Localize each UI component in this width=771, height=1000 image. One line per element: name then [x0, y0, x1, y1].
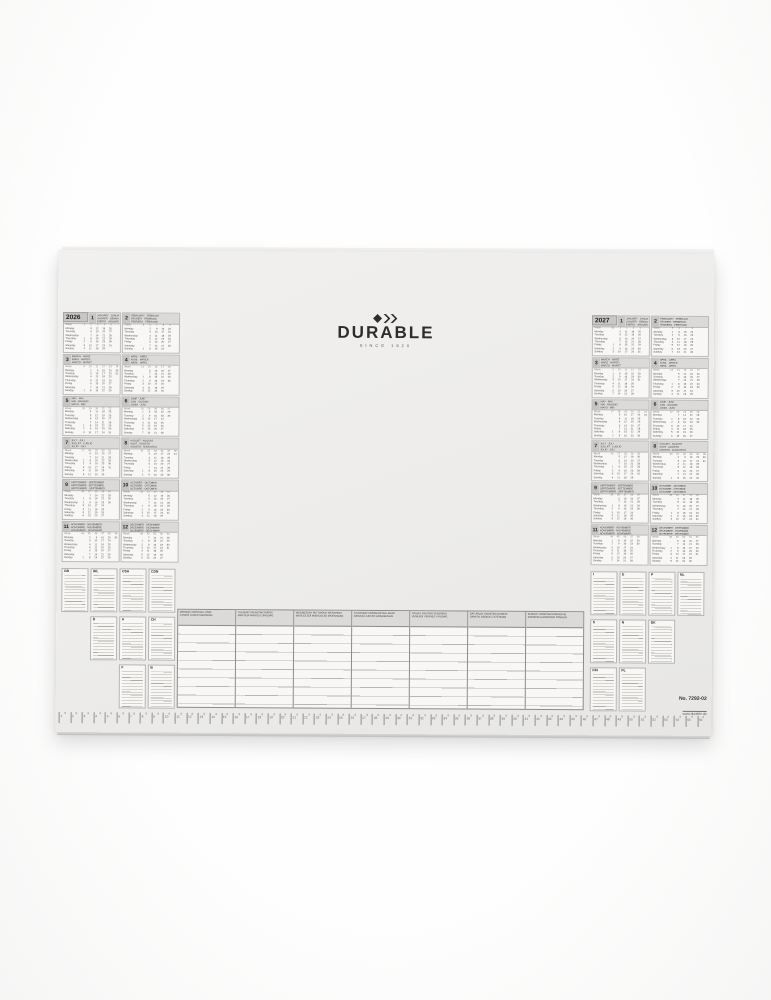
legend-country-code: IRL: [92, 569, 117, 574]
legend-country-code: A: [120, 617, 145, 622]
date-cell: [640, 474, 647, 477]
weekday-label: Sunday: [594, 393, 607, 396]
date-cell: 31: [640, 415, 647, 418]
date-cell: [170, 433, 177, 436]
ruler-cm-mark: 1: [59, 712, 71, 723]
planner-day-column: THURSDAY DONNERSTAG JEUDIGIOVEDÌ JUEVES …: [351, 611, 410, 708]
date-cell: [640, 464, 647, 467]
ruler-cm-mark: 9: [151, 713, 163, 724]
date-cell: [641, 335, 648, 338]
month-date-grid: Week3536373839Monday6132027Tuesday714212…: [592, 494, 648, 523]
month-number: 2: [652, 317, 659, 327]
date-cell: [699, 519, 706, 522]
holiday-legend-box: DK: [648, 620, 675, 664]
date-cell: [699, 502, 706, 505]
holiday-legend-box: CH: [148, 617, 175, 661]
date-cell: [640, 390, 647, 393]
month-name-line: SEPTIEMBRE · SEPTEMBER: [71, 487, 105, 490]
date-cell: [111, 453, 118, 456]
month-date-grid: Week2728293031Monday6132027Tuesday714212…: [63, 449, 119, 478]
date-cell: [640, 544, 647, 547]
week-number: [699, 495, 706, 498]
ruler-cm-mark: 14: [210, 713, 222, 724]
date-cell: [170, 509, 177, 512]
ruler-cm-mark: 10: [163, 713, 175, 724]
month-number: 12: [651, 526, 658, 536]
planner-writing-lines: [526, 628, 583, 709]
planner-day-header: FRIDAY FREITAG VENDREDIVENERDÌ VIERNES V…: [410, 611, 467, 627]
week-number: [641, 328, 648, 331]
month-date-grid: Week2627282930Monday5121926Tuesday613202…: [592, 452, 648, 481]
date-cell: [640, 498, 647, 501]
month-name-line: AGOSTO · AUGUSTUS: [659, 449, 686, 452]
weekday-label: Sunday: [653, 435, 666, 438]
date-cell: [111, 387, 118, 390]
holiday-legend-box: S: [590, 619, 617, 663]
date-cell: [170, 419, 177, 422]
weekday-label: Sunday: [65, 390, 78, 393]
ruler-cm-mark: 35: [453, 714, 465, 725]
date-cell: [699, 436, 706, 439]
month-names: MARCH · MÄRZMARS · MARZOMARZO · MAART: [71, 355, 93, 365]
date-cell: [170, 461, 177, 464]
date-cell: [700, 352, 707, 355]
legend-holiday-lines: [680, 579, 701, 615]
month-names: JULY · JULIJUILLET · LUGLIOJULIO · JULI: [70, 438, 93, 448]
month-header: 9SEPTEMBER · SEPTEMBERSEPTEMBRE · SETTEM…: [592, 483, 648, 494]
ruler-cm-mark: 47: [593, 715, 605, 726]
legend-country-code: DK: [649, 621, 674, 626]
date-cell: [700, 377, 707, 380]
date-cell: [640, 387, 647, 390]
month-name-line: DICIEMBRE · DECEMBER: [130, 529, 160, 532]
weekday-label: Sunday: [594, 435, 607, 438]
month-block: 10OCTOBER · OKTOBEROCTOBRE · OTTOBREOCTU…: [650, 483, 708, 524]
date-cell: [111, 474, 118, 477]
month-number: 8: [122, 439, 129, 449]
month-name-line: NOVIEMBRE · NOVEMBER: [71, 529, 103, 532]
month-names: DECEMBER · DEZEMBERDÉCEMBRE · DICEMBREDI…: [658, 526, 690, 536]
month-name-line: JUNIO · JUNI: [660, 407, 678, 410]
item-number: No. 7292-02: [616, 695, 707, 702]
legend-holiday-lines: [151, 671, 172, 707]
month-names: SEPTEMBER · SEPTEMBERSEPTEMBRE · SETTEMB…: [599, 483, 635, 493]
date-cell: [170, 474, 177, 477]
month-date-grid: Week313233343536Monday310172431Tuesday41…: [122, 449, 178, 478]
month-date-grid: Week1819202122Monday4111825Tuesday512192…: [63, 407, 119, 436]
month-number: 1: [618, 316, 625, 326]
date-cell: [699, 478, 706, 481]
holiday-legend-box: N: [619, 619, 646, 663]
month-header: 12DECEMBER · DEZEMBERDÉCEMBRE · DICEMBRE…: [122, 522, 178, 533]
date-cell: [170, 387, 177, 390]
week-number: [640, 453, 647, 456]
date-cell: [171, 339, 178, 342]
date-cell: [171, 377, 178, 380]
legend-country-code: GB: [63, 569, 88, 574]
month-name-line: SEPTIEMBRE · SEPTEMBER: [600, 490, 634, 493]
month-names: OCTOBER · OKTOBEROCTOBRE · OTTOBREOCTUBR…: [658, 484, 687, 494]
month-names: OCTOBER · OKTOBEROCTOBRE · OTTOBREOCTUBR…: [129, 481, 158, 491]
planner-day-header: THURSDAY DONNERSTAG JEUDIGIOVEDÌ JUEVES …: [352, 611, 409, 627]
month-block: 12DECEMBER · DEZEMBERDÉCEMBRE · DICEMBRE…: [121, 521, 179, 562]
date-cell: [170, 380, 177, 383]
ruler-cm-mark: 17: [244, 713, 256, 724]
month-header: 10OCTOBER · OKTOBEROCTOBRE · OTTOBREOCTU…: [651, 484, 707, 495]
month-names: AUGUST · AUGUSTAOÛT · AGOSTOAGOSTO · AUG…: [658, 442, 687, 452]
date-cell: [110, 547, 117, 550]
month-names: DECEMBER · DEZEMBERDÉCEMBRE · DICEMBREDI…: [129, 522, 161, 532]
month-header: 4APRIL · APRILAVRIL · APRILEABRIL · APRI…: [652, 358, 708, 369]
date-cell: [169, 544, 176, 547]
month-date-grid: Week4849505152Monday6132027Tuesday714212…: [651, 536, 707, 565]
month-name-line: FEBRERO · FEBRUARI: [131, 320, 159, 323]
date-cell: [641, 342, 648, 345]
month-names: APRIL · APRILAVRIL · APRILEABRIL · APRIL: [659, 358, 679, 368]
week-number: [640, 537, 647, 540]
ruler-cm-mark: 55: [685, 716, 697, 727]
weekday-label: Sunday: [65, 432, 78, 435]
month-block: 5MAY · MAIMAI · MAGGIOMAYO · MEIWeek1718…: [591, 399, 649, 440]
month-date-grid: Week4950515253Monday7142128Tuesday181522…: [122, 533, 178, 562]
legend-country-code: P: [649, 573, 674, 578]
ruler-cm-mark: 54: [674, 716, 686, 727]
month-header: 2FEBRUARY · FEBRUARFÉVRIER · FEBBRAIOFEB…: [123, 313, 179, 324]
month-number: 5: [64, 397, 71, 407]
month-date-grid: Week91011121314Monday29162330Tuesday3101…: [64, 365, 120, 394]
month-names: AUGUST · AUGUSTAOÛT · AGOSTOAGOSTO · AUG…: [129, 439, 158, 449]
weekday-label: Sunday: [123, 516, 136, 519]
ruler-cm-mark: 44: [558, 715, 570, 726]
month-number: 6: [123, 397, 130, 407]
week-number: [171, 325, 178, 328]
planner-day-names-line2: LUNEDÌ LUNES MAANDAG: [180, 614, 234, 618]
year-calendar-right: 1JANUARY · JANUARJANVIER · GENNAIOENERO …: [591, 315, 710, 565]
holiday-legend-box: NL: [677, 572, 704, 616]
month-header: 7JULY · JULIJUILLET · LUGLIOJULIO · JULI: [592, 442, 648, 453]
holiday-legend-box: E: [619, 571, 646, 615]
month-name-line: JUNIO · JUNI: [131, 404, 149, 407]
month-date-grid: Week4445464748Monday18152229Tuesday29162…: [592, 536, 648, 565]
date-cell: [170, 537, 177, 540]
month-header: 3MARCH · MÄRZMARS · MARZOMARZO · MAART: [64, 355, 120, 366]
planner-writing-lines: [178, 626, 235, 707]
planner-day-names-line2: DOMENICA DOMINGO ZONDAG: [528, 616, 582, 620]
week-number: [699, 537, 706, 540]
planner-day-header: WEDNESDAY MITTWOCH MERCREDIMERCOLEDÌ MIÉ…: [294, 610, 351, 626]
date-cell: [111, 495, 118, 498]
ruler-cm-mark: 25: [337, 714, 349, 725]
date-cell: [112, 349, 119, 352]
date-cell: [171, 328, 178, 331]
date-cell: [171, 346, 178, 349]
month-block: 7JULY · JULIJUILLET · LUGLIOJULIO · JULI…: [591, 441, 649, 482]
date-cell: [112, 328, 119, 331]
month-number: 11: [63, 522, 70, 532]
date-cell: [110, 554, 117, 557]
legend-holiday-lines: [151, 623, 172, 659]
legend-country-code: PL: [620, 668, 645, 673]
product-photo-scene: DURABLE SINCE 1920 2026 2027 1JANUARY · …: [0, 0, 771, 1000]
date-cell: [640, 432, 647, 435]
month-date-grid: Week444546474849Monday29162330Tuesday310…: [63, 533, 119, 562]
week-number: [640, 495, 647, 498]
week-number: [700, 370, 707, 373]
weekday-label: Sunday: [124, 432, 137, 435]
date-cell: [640, 425, 647, 428]
month-names: FEBRUARY · FEBRUARFÉVRIER · FEBBRAIOFEBR…: [130, 313, 160, 323]
date-cell: [170, 467, 177, 470]
planner-day-column: WEDNESDAY MITTWOCH MERCREDIMERCOLEDÌ MIÉ…: [293, 610, 352, 707]
cm-ruler: 1234567891011121314151617181920212223242…: [59, 712, 709, 727]
legend-holiday-lines: [593, 626, 614, 662]
month-header: 9SEPTEMBER · SEPTEMBERSEPTEMBRE · SETTEM…: [63, 480, 119, 491]
date-cell: [641, 373, 648, 376]
date-cell: [640, 467, 647, 470]
date-cell: [640, 422, 647, 425]
month-block: 5MAY · MAIMAI · MAGGIOMAYO · MEIWeek1819…: [62, 396, 120, 437]
date-cell: [171, 335, 178, 338]
weekday-label: Sunday: [653, 477, 666, 480]
month-name-line: JULIO · JULI: [600, 448, 621, 451]
ruler-cm-mark: 33: [430, 714, 442, 725]
date-cell: [700, 349, 707, 352]
month-date-grid: Week1314151617Monday5121926Tuesday613202…: [652, 369, 708, 398]
month-block: 3MARCH · MÄRZMARS · MARZOMARZO · MAARTWe…: [592, 357, 650, 398]
date-cell: [112, 345, 119, 348]
date-cell: [640, 457, 647, 460]
date-cell: [111, 457, 118, 460]
month-name-line: MARZO · MAART: [72, 362, 92, 365]
month-date-grid: Week2324252627Monday18152229Tuesday29162…: [122, 407, 178, 436]
week-number: [170, 409, 177, 412]
month-block: 8AUGUST · AUGUSTAOÛT · AGOSTOAGOSTO · AU…: [121, 438, 179, 479]
legend-holiday-lines: [93, 575, 114, 611]
date-cell: [700, 335, 707, 338]
ruler-cm-mark: 27: [360, 714, 372, 725]
month-number: 5: [593, 400, 600, 410]
ruler-cm-mark: 2: [70, 712, 82, 723]
month-number: 10: [122, 481, 129, 491]
holiday-legend-box: B: [148, 665, 175, 709]
month-number: 7: [592, 442, 599, 452]
date-cell: [699, 394, 706, 397]
date-cell: [700, 332, 707, 335]
date-cell: [110, 558, 117, 561]
holiday-legend-box: IRL: [90, 568, 117, 612]
date-cell: [170, 415, 177, 418]
legend-holiday-lines: [593, 578, 614, 614]
month-number: 3: [593, 358, 600, 368]
planner-day-header: TUESDAY DIENSTAG MARDIMARTEDÌ MARTES DIN…: [236, 610, 293, 626]
date-cell: [699, 432, 706, 435]
month-header: 5MAY · MAIMAI · MAGGIOMAYO · MEI: [593, 400, 649, 411]
month-date-grid: Week56789Monday291623Tuesday3101724Wedne…: [123, 324, 179, 353]
month-names: NOVEMBER · NOVEMBERNOVEMBRE · NOVEMBRENO…: [70, 522, 104, 532]
date-cell: [111, 516, 118, 519]
month-header: 12DECEMBER · DEZEMBERDÉCEMBRE · DICEMBRE…: [651, 526, 707, 537]
month-block: 8AUGUST · AUGUSTAOÛT · AGOSTOAGOSTO · AU…: [650, 441, 708, 482]
month-block: 4APRIL · APRILAVRIL · APRILEABRIL · APRI…: [122, 354, 180, 395]
weekday-label: Sunday: [124, 474, 137, 477]
ruler-cm-mark: 42: [535, 715, 547, 726]
month-date-grid: Week12345Monday5121926Tuesday6132027Wedn…: [64, 324, 120, 353]
date-cell: [170, 412, 177, 415]
legend-holiday-lines: [151, 575, 172, 611]
legend-country-code: I: [591, 572, 616, 577]
date-cell: 31: [112, 373, 119, 376]
month-names: APRIL · APRILAVRIL · APRILEABRIL · APRIL: [130, 355, 150, 365]
month-block: 2FEBRUARY · FEBRUARFÉVRIER · FEBBRAIOFEB…: [122, 312, 180, 353]
month-header: 8AUGUST · AUGUSTAOÛT · AGOSTOAGOSTO · AU…: [651, 442, 707, 453]
legend-holiday-lines: [622, 578, 643, 614]
month-block: 10OCTOBER · OKTOBEROCTOBRE · OTTOBREOCTU…: [121, 480, 179, 521]
month-name-line: ABRIL · APRIL: [660, 365, 678, 368]
planner-writing-lines: [410, 627, 467, 708]
ruler-cm-mark: 23: [314, 714, 326, 725]
date-cell: [112, 331, 119, 334]
date-cell: [699, 429, 706, 432]
month-header: 11NOVEMBER · NOVEMBERNOVEMBRE · NOVEMBRE…: [592, 525, 648, 536]
month-number: 7: [63, 438, 70, 448]
weekday-label: Sunday: [65, 348, 78, 351]
legend-country-code: B: [149, 666, 174, 671]
date-cell: [640, 460, 647, 463]
date-cell: 30: [111, 537, 118, 540]
month-name-line: ENERO · JANUARI: [626, 323, 648, 326]
date-cell: [699, 419, 706, 422]
month-names: MAY · MAIMAI · MAGGIOMAYO · MEI: [600, 400, 619, 410]
date-cell: [110, 544, 117, 547]
legend-country-code: N: [620, 620, 645, 625]
month-date-grid: Week3637383940Monday7142128Tuesday181522…: [63, 491, 119, 520]
date-cell: [639, 554, 646, 557]
month-date-grid: Week1415161718Monday6132027Tuesday714212…: [123, 366, 179, 395]
month-date-grid: Week5678Monday181522Tuesday291623Wednesd…: [652, 327, 708, 356]
planner-day-names-line2: MARTEDÌ MARTES DINSDAG: [238, 614, 292, 618]
date-cell: [699, 391, 706, 394]
date-cell: [700, 338, 707, 341]
month-block: 7JULY · JULIJUILLET · LUGLIOJULIO · JULI…: [62, 437, 120, 478]
date-cell: [639, 551, 646, 554]
date-cell: [640, 516, 647, 519]
ruler-cm-mark: 41: [523, 715, 535, 726]
date-cell: [698, 558, 705, 561]
date-cell: [640, 470, 647, 473]
weekday-label: Sunday: [65, 474, 78, 477]
month-number: 11: [592, 525, 599, 535]
year-badge-2027: 2027: [592, 315, 617, 325]
month-header: 7JULY · JULIJUILLET · LUGLIOJULIO · JULI: [63, 438, 119, 449]
month-number: 8: [651, 442, 658, 452]
date-cell: [111, 412, 118, 415]
holiday-legend-box: F: [119, 664, 146, 708]
date-cell: [698, 547, 705, 550]
date-cell: [700, 342, 707, 345]
date-cell: [170, 496, 177, 499]
date-cell: 31: [699, 460, 706, 463]
date-cell: [170, 516, 177, 519]
date-cell: [700, 345, 707, 348]
month-block: 9SEPTEMBER · SEPTEMBERSEPTEMBRE · SETTEM…: [591, 482, 649, 523]
ruler-cm-mark: 5: [105, 712, 117, 723]
holiday-legend-box: A: [119, 616, 146, 660]
date-cell: [111, 460, 118, 463]
month-block: 3MARCH · MÄRZMARS · MARZOMARZO · MAARTWe…: [63, 354, 121, 395]
date-cell: [640, 429, 647, 432]
planner-writing-lines: [294, 626, 351, 707]
date-cell: [699, 544, 706, 547]
planner-writing-lines: [352, 627, 409, 708]
ruler-cm-mark: 46: [581, 715, 593, 726]
holiday-legend-box: GB: [61, 568, 88, 612]
month-number: 2: [123, 313, 130, 323]
ruler-cm-mark: 53: [662, 716, 674, 727]
ruler-cm-mark: 52: [651, 716, 663, 727]
planner-day-names-line2: GIOVEDÌ JUEVES DONDERDAG: [354, 615, 408, 619]
date-cell: [640, 435, 647, 438]
date-cell: [699, 474, 706, 477]
date-cell: [111, 380, 118, 383]
holiday-legend-box: I: [590, 571, 617, 615]
date-cell: [170, 426, 177, 429]
month-number: 12: [122, 522, 129, 532]
month-names: JULY · JULIJUILLET · LUGLIOJULIO · JULI: [599, 442, 622, 452]
ruler-cm-mark: 7: [128, 712, 140, 723]
date-cell: [699, 506, 706, 509]
ruler-cm-mark: 38: [488, 715, 500, 726]
date-cell: [171, 342, 178, 345]
date-cell: [639, 547, 646, 550]
ruler-cm-mark: 34: [442, 714, 454, 725]
date-cell: [639, 557, 646, 560]
planner-day-column: SUNDAY SONNTAG DIMANCHEDOMENICA DOMINGO …: [525, 612, 584, 709]
date-cell: [170, 429, 177, 432]
month-date-grid: Week4041424344Monday5121926Tuesday613202…: [122, 491, 178, 520]
date-cell: [111, 512, 118, 515]
date-cell: [641, 352, 648, 355]
date-cell: [699, 467, 706, 470]
month-names: JUNE · JUNIJUIN · GIUGNOJUNIO · JUNI: [659, 400, 679, 410]
weekday-label: Sunday: [64, 557, 77, 560]
month-names: FEBRUARY · FEBRUARFÉVRIER · FEBBRAIOFEBR…: [659, 317, 689, 327]
month-date-grid: Week531234Monday4111825Tuesday5121926Wed…: [593, 327, 649, 356]
month-names: JUNE · JUNIJUIN · GIUGNOJUNIO · JUNI: [130, 397, 150, 407]
date-cell: [169, 551, 176, 554]
date-cell: [641, 338, 648, 341]
date-cell: [171, 349, 178, 352]
legend-holiday-lines: [93, 623, 114, 659]
date-cell: [699, 464, 706, 467]
date-cell: [640, 502, 647, 505]
week-number: [170, 492, 177, 495]
date-cell: [170, 391, 177, 394]
date-cell: [170, 502, 177, 505]
month-name-line: OCTUBRE · OKTOBER: [130, 487, 157, 490]
date-cell: [171, 332, 178, 335]
legend-holiday-lines: [622, 626, 643, 662]
weekday-label: Sunday: [123, 558, 136, 561]
legend-country-code: S: [591, 620, 616, 625]
date-cell: [169, 558, 176, 561]
holiday-legend-box: USA: [119, 568, 146, 612]
month-number: 9: [63, 480, 70, 490]
ruler-cm-mark: 28: [372, 714, 384, 725]
date-cell: [112, 342, 119, 345]
weekday-label: Sunday: [653, 352, 666, 355]
week-number: [170, 534, 177, 537]
date-cell: [640, 394, 647, 397]
